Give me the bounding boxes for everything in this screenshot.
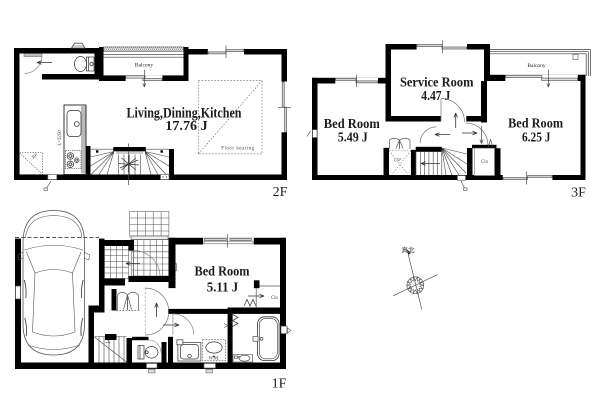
svg-text:4.47 J: 4.47 J xyxy=(421,89,450,104)
svg-text:5.11 J: 5.11 J xyxy=(207,280,239,295)
svg-text:Bed Room: Bed Room xyxy=(324,117,380,132)
svg-text:1F: 1F xyxy=(272,377,287,392)
svg-text:Clo: Clo xyxy=(481,160,489,165)
svg-text:Balcony: Balcony xyxy=(527,63,546,69)
svg-text:3F: 3F xyxy=(571,186,586,201)
svg-text:Floor heating: Floor heating xyxy=(221,147,255,152)
svg-text:Balcony: Balcony xyxy=(135,63,154,69)
svg-text:L=2250: L=2250 xyxy=(58,130,63,146)
svg-text:W.M.: W.M. xyxy=(209,357,220,362)
svg-text:Bed Room: Bed Room xyxy=(508,117,563,132)
svg-text:真北: 真北 xyxy=(402,245,416,254)
svg-text:Clo: Clo xyxy=(271,296,279,301)
svg-text:17.76 J: 17.76 J xyxy=(165,119,208,134)
svg-text:5.49 J: 5.49 J xyxy=(338,131,368,146)
svg-text:2F: 2F xyxy=(273,185,288,200)
svg-text:6.25 J: 6.25 J xyxy=(522,131,551,146)
svg-text:Bed Room: Bed Room xyxy=(195,265,250,280)
